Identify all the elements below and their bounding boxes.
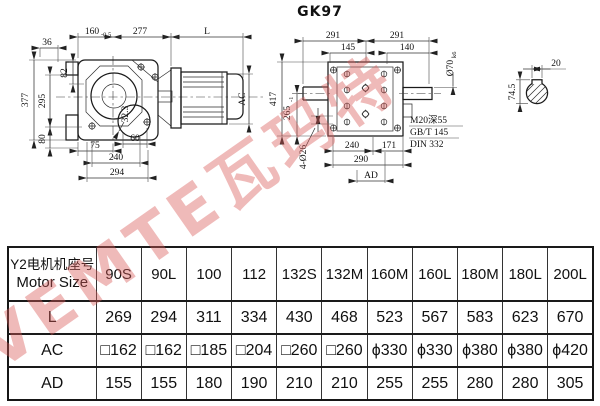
value-cell: ϕ420 bbox=[548, 334, 593, 367]
spec-table-wrap: Y2电机机座号 Motor Size 90S 90L 100 112 132S … bbox=[7, 246, 594, 401]
dim-80: 80 bbox=[38, 134, 48, 144]
dim-36: 36 bbox=[42, 38, 52, 48]
technical-drawing: GK97 160 -0.5 277 bbox=[0, 0, 600, 244]
value-cell: 210 bbox=[277, 367, 322, 400]
dim-265: 265 bbox=[283, 106, 293, 121]
front-view-drawing: 291 291 145 140 Ø70 k6 417 265 -1 4-Ø26 bbox=[269, 31, 463, 183]
value-cell: ϕ380 bbox=[457, 334, 502, 367]
col-header: 132M bbox=[322, 247, 367, 301]
col-header: 160M bbox=[367, 247, 412, 301]
motor-size-header-zh: Y2电机机座号 bbox=[9, 256, 96, 274]
dim-240-front: 240 bbox=[345, 141, 360, 151]
value-cell: 305 bbox=[548, 367, 593, 400]
value-cell: ϕ330 bbox=[412, 334, 457, 367]
value-cell: 255 bbox=[412, 367, 457, 400]
motor-flange bbox=[171, 68, 181, 128]
col-header: 200L bbox=[548, 247, 593, 301]
value-cell: □204 bbox=[232, 334, 277, 367]
dim-AC: AC bbox=[238, 92, 248, 105]
value-cell: 255 bbox=[367, 367, 412, 400]
table-row-L: L 269 294 311 334 430 468 523 567 583 62… bbox=[8, 301, 593, 334]
row-label: L bbox=[8, 301, 96, 334]
motor-size-header: Y2电机机座号 Motor Size bbox=[8, 247, 96, 301]
table-row-AD: AD 155 155 180 190 210 210 255 255 280 2… bbox=[8, 367, 593, 400]
value-cell: □260 bbox=[322, 334, 367, 367]
value-cell: □162 bbox=[96, 334, 141, 367]
dim-171: 171 bbox=[382, 141, 397, 151]
table-header-row: Y2电机机座号 Motor Size 90S 90L 100 112 132S … bbox=[8, 247, 593, 301]
dim-160: 160 bbox=[85, 27, 100, 37]
front-view-dimensions: 291 291 145 140 Ø70 k6 417 265 -1 4-Ø26 bbox=[269, 31, 463, 183]
motor-size-table: Y2电机机座号 Motor Size 90S 90L 100 112 132S … bbox=[7, 246, 594, 401]
value-cell: 334 bbox=[232, 301, 277, 334]
value-cell: 670 bbox=[548, 301, 593, 334]
row-label: AD bbox=[8, 367, 96, 400]
dim-74-5: 74.5 bbox=[508, 83, 518, 100]
dim-265-tol: -1 bbox=[288, 97, 295, 102]
dim-240: 240 bbox=[109, 153, 124, 163]
value-cell: 190 bbox=[232, 367, 277, 400]
dim-foot-holes: 4-Ø26 bbox=[299, 145, 309, 170]
dim-277: 277 bbox=[133, 27, 148, 37]
dim-AD: AD bbox=[364, 171, 378, 181]
dim-82: 82 bbox=[60, 68, 70, 78]
side-view-drawing: 160 -0.5 277 L 36 82 377 295 80 AC 75 60… bbox=[21, 27, 264, 182]
cover-bolt-pattern bbox=[344, 71, 387, 126]
value-cell: 468 bbox=[322, 301, 367, 334]
table-row-AC: AC □162 □162 □185 □204 □260 □260 ϕ330 ϕ3… bbox=[8, 334, 593, 367]
dim-shaft-fit: k6 bbox=[451, 51, 458, 58]
row-label: AC bbox=[8, 334, 96, 367]
value-cell: 567 bbox=[412, 301, 457, 334]
col-header: 180M bbox=[457, 247, 502, 301]
value-cell: 210 bbox=[322, 367, 367, 400]
col-header: 100 bbox=[186, 247, 231, 301]
value-cell: 155 bbox=[96, 367, 141, 400]
motor-size-header-en: Motor Size bbox=[9, 274, 96, 292]
corner-bolts bbox=[330, 67, 401, 132]
motor-body bbox=[181, 72, 227, 124]
dim-377: 377 bbox=[21, 93, 31, 108]
dim-L: L bbox=[204, 27, 210, 37]
value-cell: 269 bbox=[96, 301, 141, 334]
value-cell: 523 bbox=[367, 301, 412, 334]
shaft-key-section-drawing: 20 74.5 bbox=[508, 59, 566, 114]
value-cell: 155 bbox=[141, 367, 186, 400]
dim-291-left: 291 bbox=[326, 31, 341, 41]
value-cell: 583 bbox=[457, 301, 502, 334]
output-boss bbox=[86, 66, 142, 126]
dim-160-tol: -0.5 bbox=[101, 32, 111, 39]
dim-60: 60 bbox=[130, 134, 140, 144]
value-cell: □260 bbox=[277, 334, 322, 367]
value-cell: 430 bbox=[277, 301, 322, 334]
dim-140: 140 bbox=[400, 43, 415, 53]
col-header: 90S bbox=[96, 247, 141, 301]
dim-145: 145 bbox=[341, 43, 356, 53]
note-tapped-hole: M20深55 bbox=[410, 115, 447, 126]
col-header: 90L bbox=[141, 247, 186, 301]
housing-front bbox=[328, 62, 403, 136]
value-cell: 180 bbox=[186, 367, 231, 400]
dim-291-right: 291 bbox=[390, 31, 405, 41]
note-din-standard: DIN 332 bbox=[410, 140, 444, 150]
value-cell: ϕ380 bbox=[503, 334, 548, 367]
col-header: 112 bbox=[232, 247, 277, 301]
value-cell: 311 bbox=[186, 301, 231, 334]
value-cell: □162 bbox=[141, 334, 186, 367]
dim-295: 295 bbox=[38, 94, 48, 109]
dim-294: 294 bbox=[110, 168, 125, 178]
value-cell: 280 bbox=[503, 367, 548, 400]
gearbox-datasheet-page: GK97 160 -0.5 277 bbox=[0, 0, 600, 406]
value-cell: 280 bbox=[457, 367, 502, 400]
hatching bbox=[522, 72, 558, 114]
col-header: 132S bbox=[277, 247, 322, 301]
dim-290: 290 bbox=[354, 155, 369, 165]
col-header: 180L bbox=[503, 247, 548, 301]
col-header: 160L bbox=[412, 247, 457, 301]
shaft-section-circle bbox=[526, 82, 547, 103]
dim-417: 417 bbox=[269, 92, 279, 107]
note-gb-standard: GB/T 145 bbox=[410, 128, 448, 138]
dim-20: 20 bbox=[551, 59, 561, 69]
value-cell: □185 bbox=[186, 334, 231, 367]
dim-32-3: 32.3 bbox=[121, 105, 131, 122]
dim-shaft-dia: Ø70 bbox=[446, 60, 456, 77]
value-cell: ϕ330 bbox=[367, 334, 412, 367]
drawing-title: GK97 bbox=[297, 4, 343, 20]
value-cell: 294 bbox=[141, 301, 186, 334]
side-view-dimensions: 160 -0.5 277 L 36 82 377 295 80 AC 75 60… bbox=[21, 27, 253, 182]
value-cell: 623 bbox=[503, 301, 548, 334]
